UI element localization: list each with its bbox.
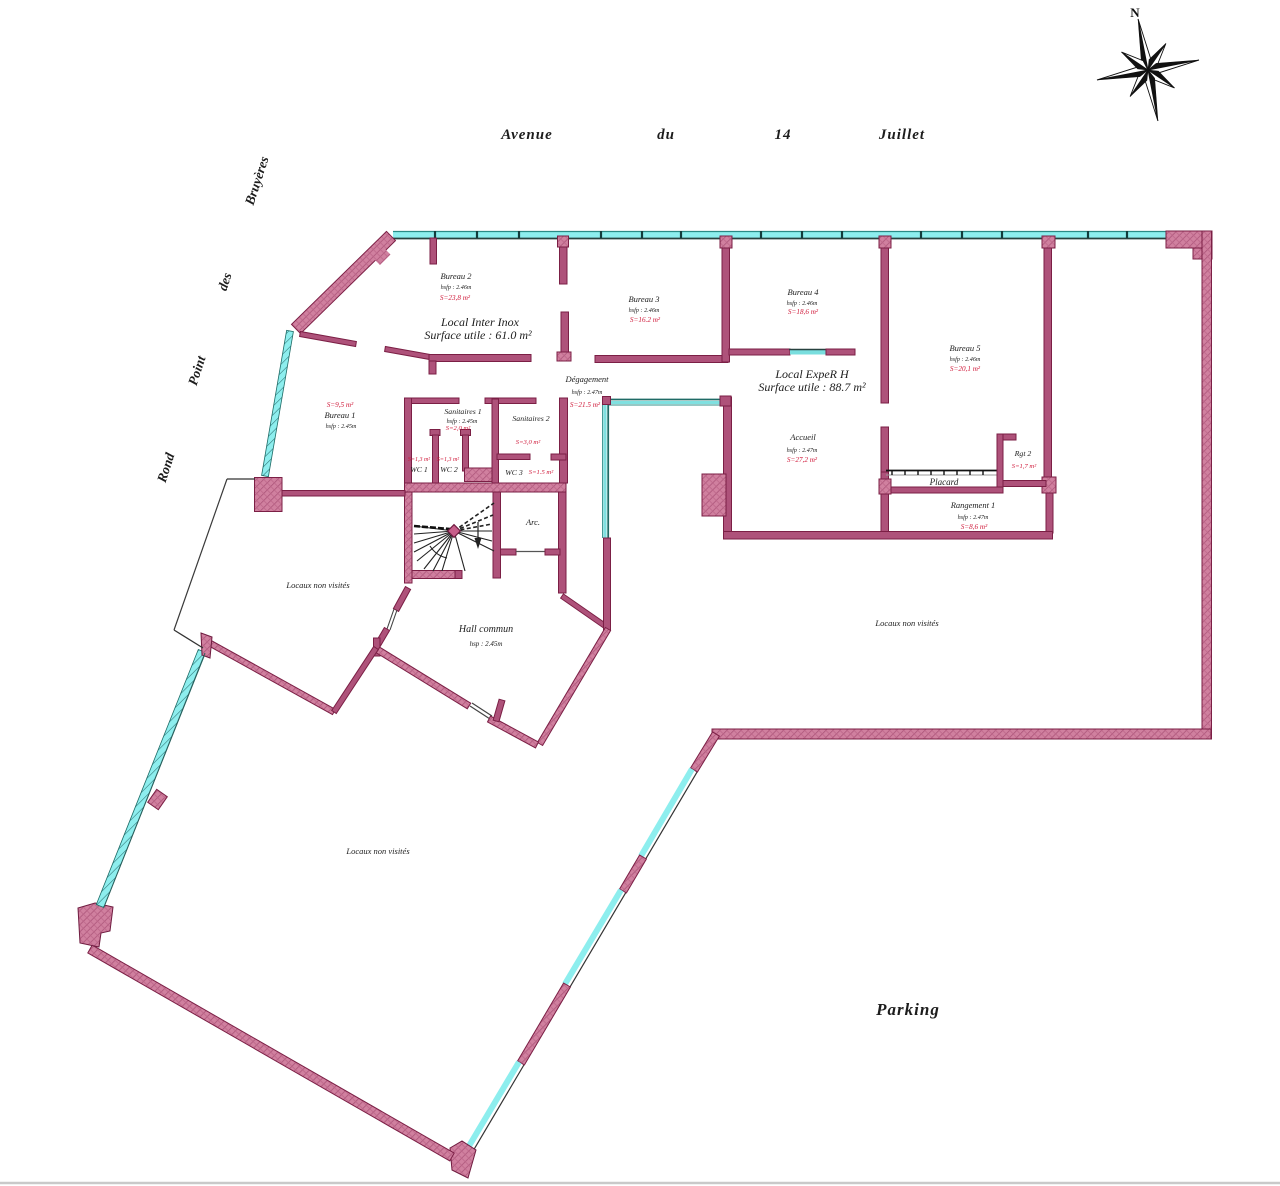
svg-text:S=20,1 m²: S=20,1 m² (950, 365, 981, 373)
svg-text:Arc.: Arc. (525, 517, 540, 527)
svg-text:Locaux non visités: Locaux non visités (285, 580, 350, 590)
svg-text:S=18,6 m²: S=18,6 m² (788, 308, 819, 316)
svg-text:Placard: Placard (929, 477, 959, 487)
svg-text:Bureau 3: Bureau 3 (628, 294, 659, 304)
svg-text:Surface utile : 61.0 m²: Surface utile : 61.0 m² (424, 328, 532, 342)
svg-text:Surface utile : 88.7 m²: Surface utile : 88.7 m² (758, 380, 866, 394)
svg-text:WC 3: WC 3 (505, 468, 523, 477)
svg-text:hsfp : 2.47m: hsfp : 2.47m (572, 389, 603, 396)
svg-text:S=2,0 m²: S=2,0 m² (446, 425, 471, 432)
svg-text:N: N (1130, 5, 1140, 20)
svg-text:hsfp : 2.46m: hsfp : 2.46m (629, 307, 660, 314)
svg-text:hsfp : 2.46m: hsfp : 2.46m (787, 300, 818, 307)
svg-text:hsp : 2.45m: hsp : 2.45m (470, 640, 503, 648)
svg-text:Rgt 2: Rgt 2 (1014, 449, 1032, 458)
svg-text:Avenue: Avenue (500, 127, 553, 143)
svg-text:Rangement 1: Rangement 1 (950, 500, 996, 510)
svg-text:Juillet: Juillet (878, 127, 925, 143)
svg-text:S=1,3 m²: S=1,3 m² (437, 457, 459, 463)
svg-text:hsfp : 2.45m: hsfp : 2.45m (447, 418, 478, 425)
svg-text:S=27,2 m²: S=27,2 m² (787, 456, 818, 464)
svg-text:Dégagement: Dégagement (565, 374, 610, 384)
svg-text:Bureau 1: Bureau 1 (324, 410, 355, 420)
svg-text:Local ExpeR H: Local ExpeR H (774, 367, 850, 381)
svg-text:Bureau 4: Bureau 4 (787, 287, 819, 297)
svg-text:WC 2: WC 2 (440, 465, 458, 474)
svg-text:Parking: Parking (875, 1000, 940, 1019)
svg-text:Locaux non visités: Locaux non visités (874, 618, 939, 628)
svg-text:hsfp : 2.47m: hsfp : 2.47m (787, 447, 818, 454)
svg-text:Sanitaires 1: Sanitaires 1 (444, 407, 481, 416)
svg-text:Local Inter Inox: Local Inter Inox (440, 315, 520, 329)
svg-text:S=16.2 m²: S=16.2 m² (630, 316, 661, 324)
svg-text:S=8,6 m²: S=8,6 m² (961, 523, 988, 531)
svg-text:hsfp : 2.46m: hsfp : 2.46m (950, 356, 981, 363)
svg-text:hsfp : 2.46m: hsfp : 2.46m (441, 284, 472, 291)
svg-text:hsfp : 2.47m: hsfp : 2.47m (958, 514, 989, 521)
svg-text:Bureau 2: Bureau 2 (440, 271, 472, 281)
svg-text:hsfp : 2.45m: hsfp : 2.45m (326, 423, 357, 430)
svg-text:Sanitaires 2: Sanitaires 2 (512, 414, 549, 423)
svg-text:WC 1: WC 1 (410, 465, 428, 474)
svg-text:du: du (657, 127, 675, 143)
svg-text:S=21.5 m²: S=21.5 m² (570, 401, 601, 409)
svg-text:S=23,8 m²: S=23,8 m² (440, 294, 471, 302)
svg-text:S=3,0 m²: S=3,0 m² (516, 439, 541, 446)
svg-text:Bureau 5: Bureau 5 (949, 343, 980, 353)
svg-text:S=9,5 m²: S=9,5 m² (327, 401, 354, 409)
svg-text:14: 14 (775, 127, 792, 143)
svg-text:S=1,7 m²: S=1,7 m² (1012, 463, 1037, 470)
svg-text:Accueil: Accueil (789, 432, 816, 442)
svg-text:Locaux non visités: Locaux non visités (345, 846, 410, 856)
svg-text:Hall commun: Hall commun (458, 624, 513, 635)
svg-text:S=1,3 m²: S=1,3 m² (408, 457, 430, 463)
svg-text:S=1.5 m²: S=1.5 m² (529, 469, 554, 476)
